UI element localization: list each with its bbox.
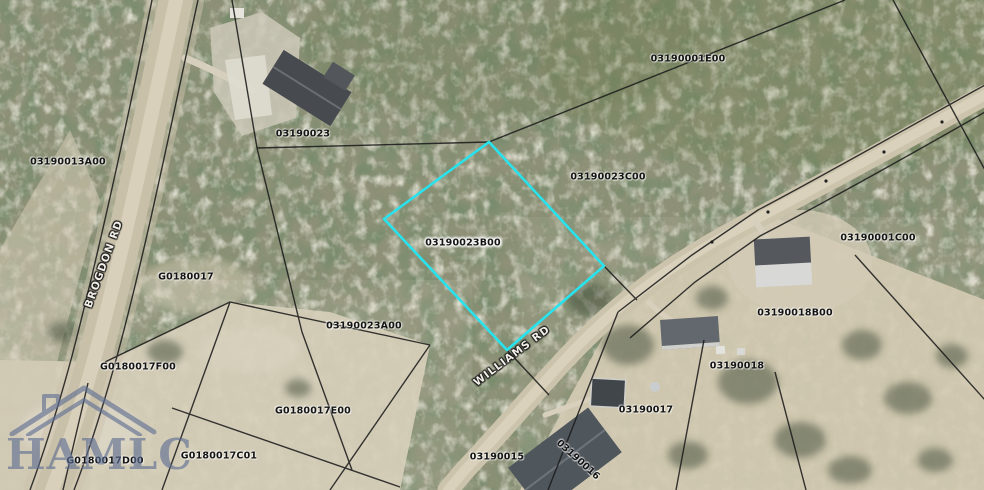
parcel-boundary-lines	[30, 0, 984, 490]
parcel-overlay	[0, 0, 984, 490]
highlighted-parcel-outline[interactable]	[384, 142, 604, 350]
aerial-parcel-map[interactable]: 03190001E000319002303190013A0003190023C0…	[0, 0, 984, 490]
